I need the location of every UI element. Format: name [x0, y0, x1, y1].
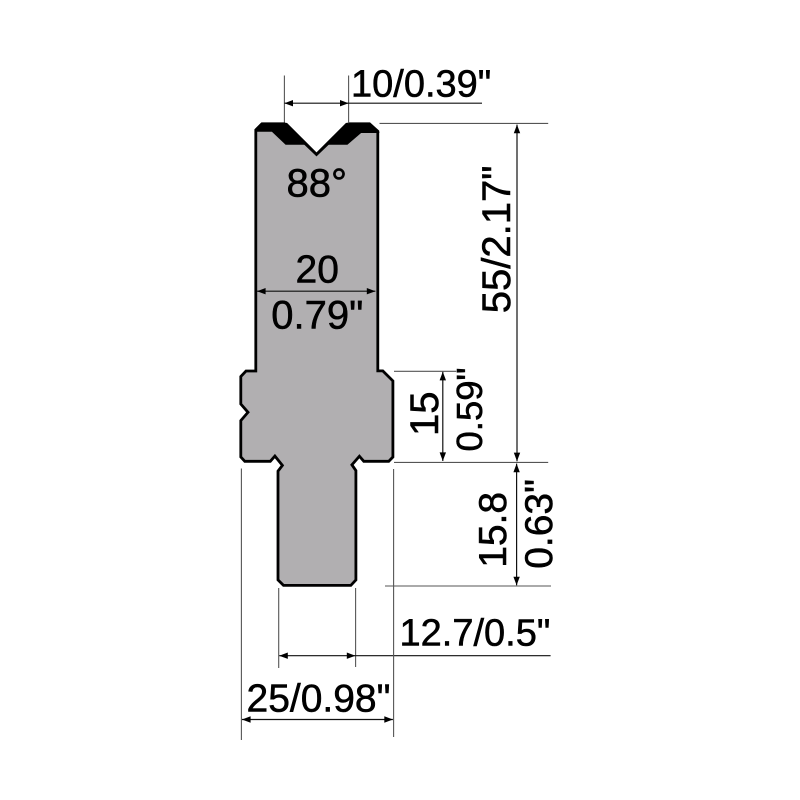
svg-text:0.79": 0.79" [271, 294, 363, 338]
svg-text:20: 20 [296, 249, 339, 292]
svg-text:25/0.98": 25/0.98" [247, 678, 391, 721]
svg-text:0.63": 0.63" [518, 479, 561, 569]
svg-text:0.59": 0.59" [449, 368, 490, 452]
svg-text:15.8: 15.8 [472, 492, 515, 568]
svg-text:15: 15 [403, 392, 447, 437]
svg-text:55/2.17": 55/2.17" [475, 166, 519, 314]
svg-text:88°: 88° [287, 162, 348, 206]
svg-text:12.7/0.5": 12.7/0.5" [400, 613, 551, 655]
svg-text:10/0.39": 10/0.39" [351, 64, 491, 106]
